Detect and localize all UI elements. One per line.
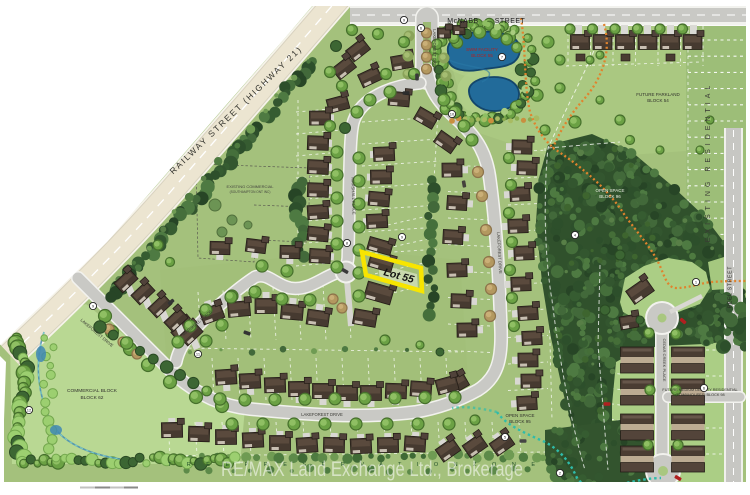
svg-text:LAKEFOREST DRIVE: LAKEFOREST DRIVE <box>432 29 437 71</box>
svg-text:10: 10 <box>450 112 455 117</box>
svg-text:CEDAR CREEK PLACE: CEDAR CREEK PLACE <box>662 338 667 381</box>
svg-text:(SOUTHAMPTON ONT INC): (SOUTHAMPTON ONT INC) <box>230 190 271 194</box>
svg-text:RE/MAX Land Exchange Ltd., Bro: RE/MAX Land Exchange Ltd., Brokerage <box>221 457 523 481</box>
svg-text:SWM FACILITY: SWM FACILITY <box>466 47 498 52</box>
svg-text:OPEN SPACE: OPEN SPACE <box>506 413 535 418</box>
svg-text:(TOWNHOUSES) BLOCK 98: (TOWNHOUSES) BLOCK 98 <box>675 393 724 397</box>
svg-text:LAKEFOREST DRIVE: LAKEFOREST DRIVE <box>301 412 343 417</box>
svg-text:FUTURE PARKLAND: FUTURE PARKLAND <box>636 92 680 97</box>
svg-text:OPEN SPACE: OPEN SPACE <box>596 188 625 193</box>
svg-text:PEEL STREET: PEEL STREET <box>728 266 734 309</box>
svg-text:STREET: STREET <box>495 18 526 25</box>
svg-text:McNABB: McNABB <box>447 18 478 25</box>
svg-text:EXISTING RESIDENTIAL: EXISTING RESIDENTIAL <box>705 82 712 243</box>
svg-text:BLOCK 54: BLOCK 54 <box>647 98 669 103</box>
svg-text:12: 12 <box>27 408 32 413</box>
svg-text:COMMERCIAL BLOCK: COMMERCIAL BLOCK <box>67 388 118 394</box>
svg-text:BLOCK 62: BLOCK 62 <box>81 395 104 401</box>
svg-text:EXISTING COMMERCIAL: EXISTING COMMERCIAL <box>227 184 275 189</box>
svg-text:BLOCK 96: BLOCK 96 <box>599 194 621 199</box>
svg-text:BLOCK 95: BLOCK 95 <box>509 419 531 424</box>
svg-text:BLOCK 55: BLOCK 55 <box>471 53 493 58</box>
